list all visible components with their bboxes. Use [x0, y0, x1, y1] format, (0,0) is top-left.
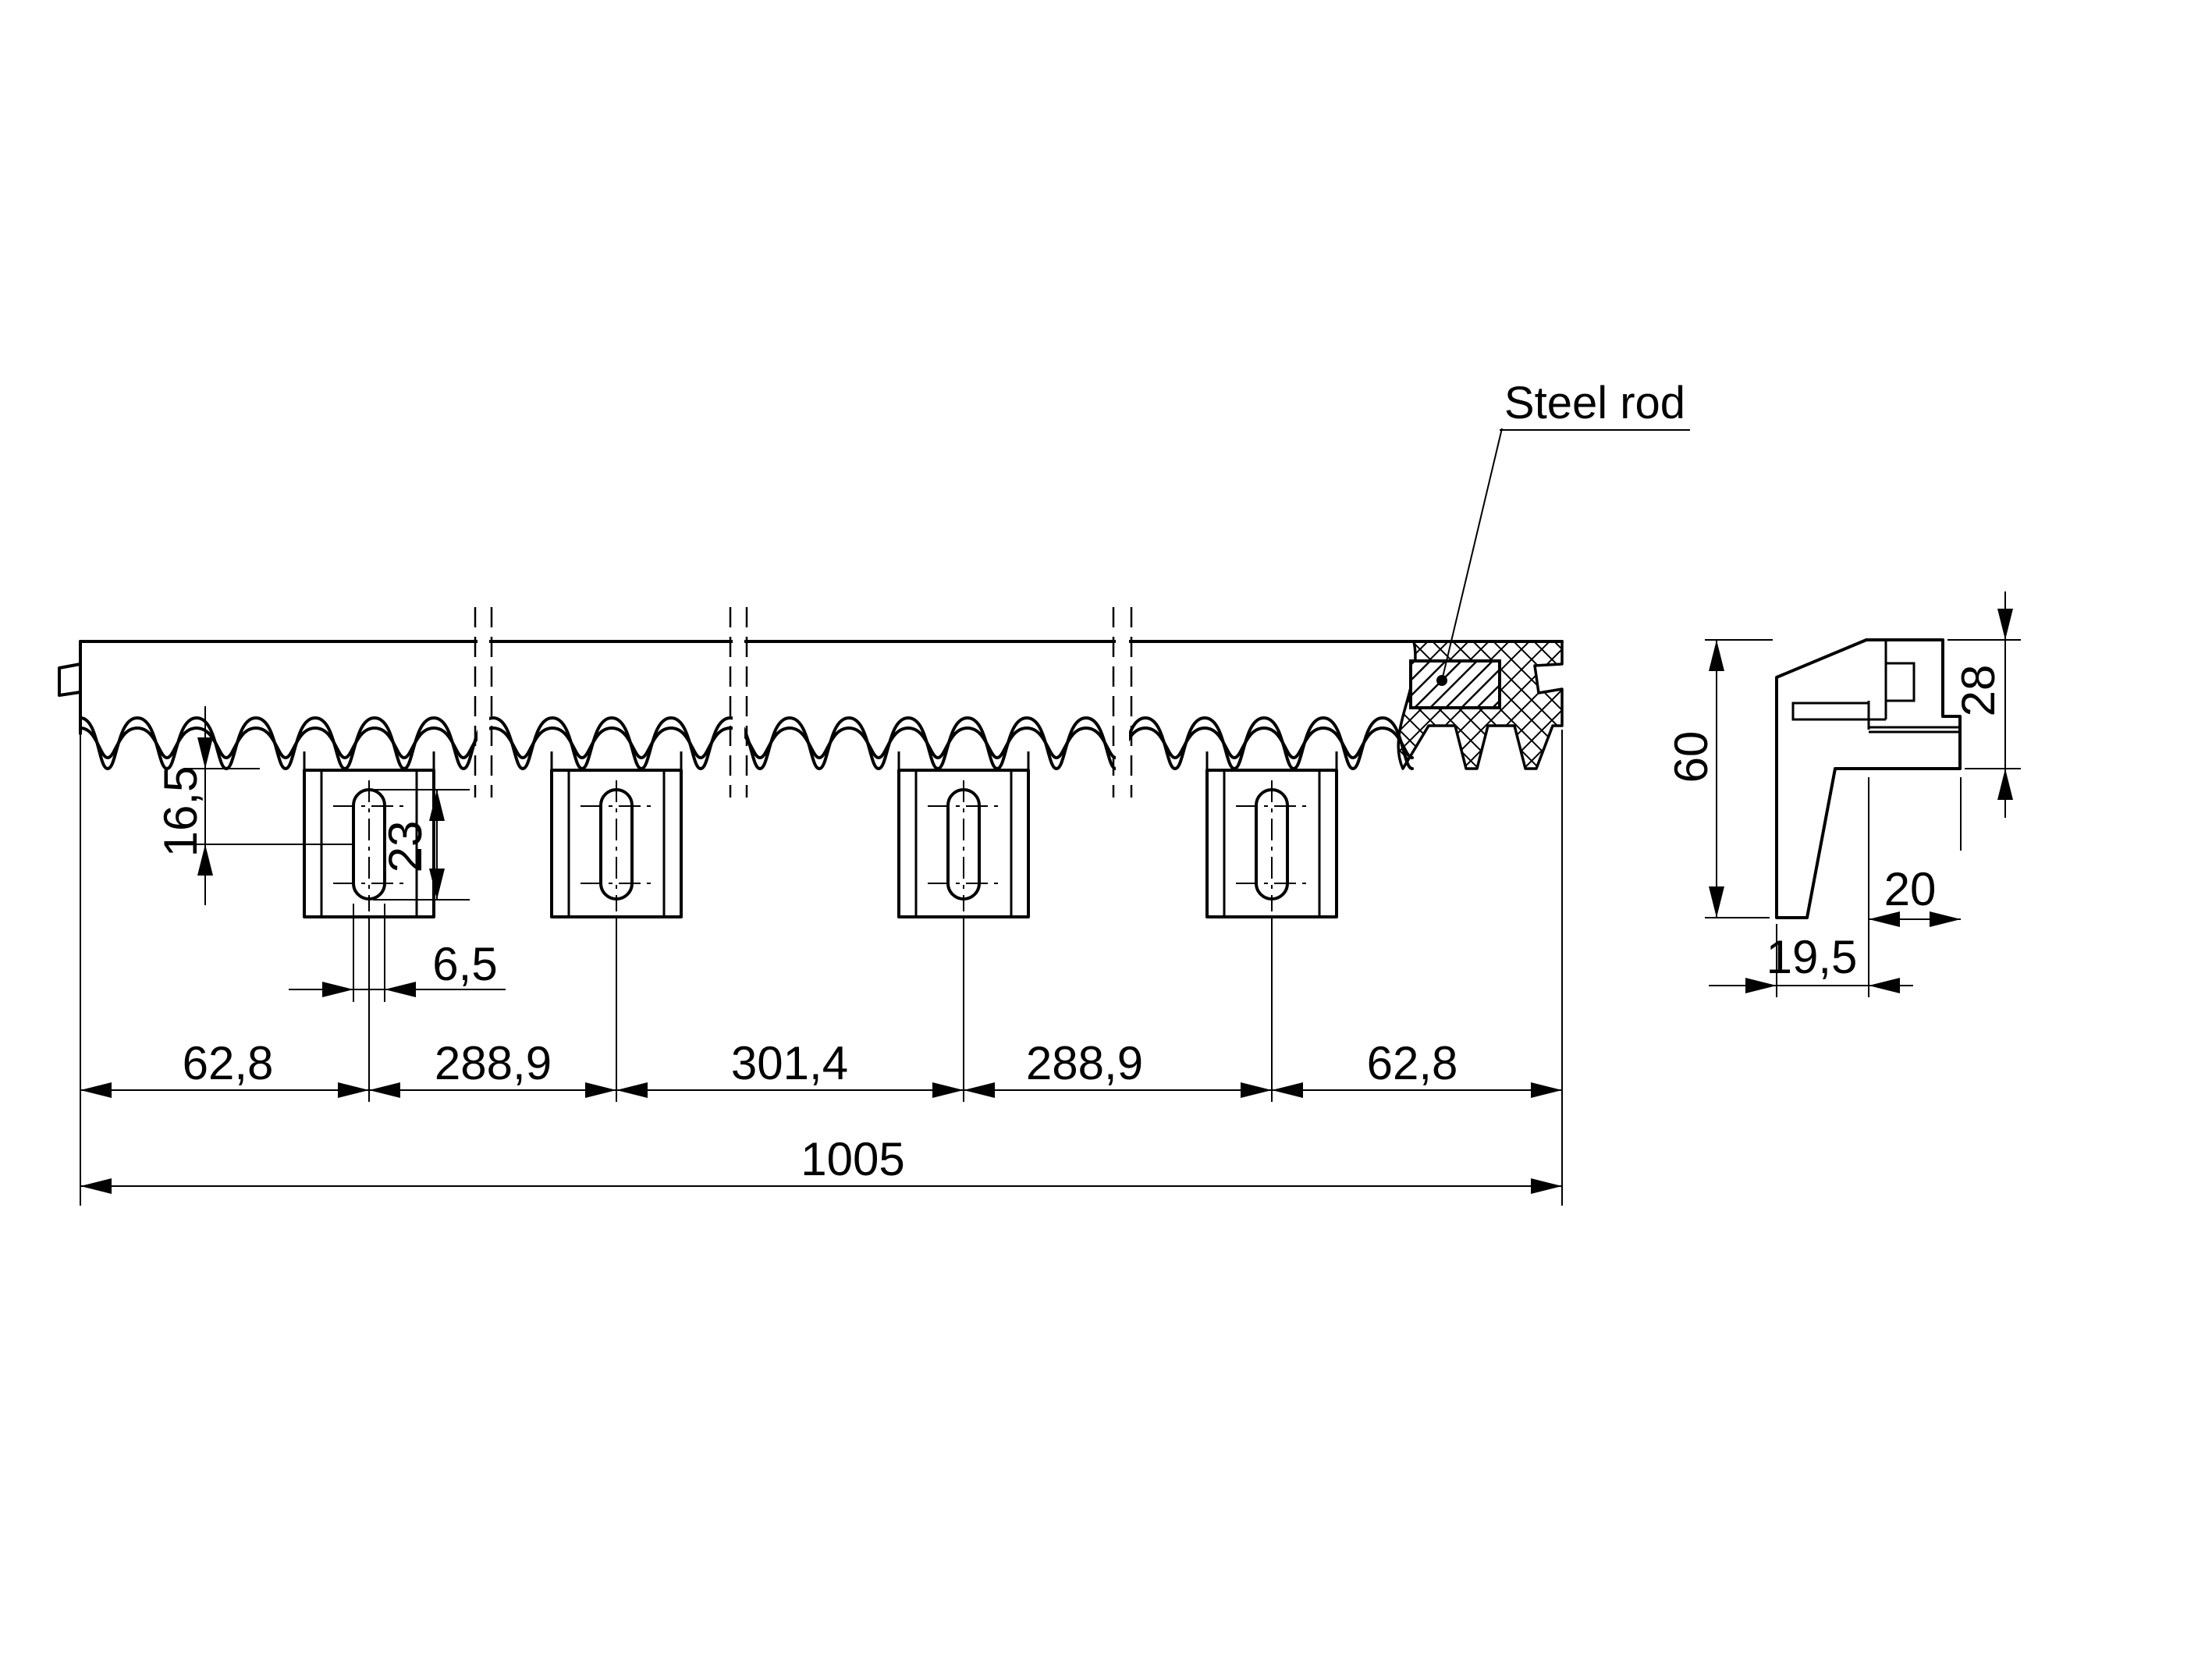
dim-arrow [429, 869, 445, 900]
slot-centerlines [928, 780, 999, 911]
dim-label-62-8-left: 62,8 [183, 1037, 274, 1089]
dim-arrow [1869, 978, 1900, 993]
dim-arrow [1709, 886, 1724, 918]
rack-end-section: Steel rod [1398, 378, 1690, 769]
bracket [1207, 751, 1337, 1102]
dim-arrow [338, 1082, 369, 1098]
bracket-side-stubs [304, 751, 434, 770]
profile-groove [1886, 663, 1914, 701]
break-gap [1116, 624, 1129, 784]
dim-label-6-5: 6,5 [432, 938, 497, 990]
dim-label-60: 60 [1665, 731, 1717, 783]
dim-label-301-4: 301,4 [731, 1037, 848, 1089]
dim-label-16-5: 16,5 [154, 766, 207, 858]
dim-arrow [385, 982, 416, 997]
dim-arrow [964, 1082, 995, 1098]
dim-label-23: 23 [379, 821, 431, 873]
steel-rod-callout: Steel rod [1504, 378, 1685, 428]
dim-arrow [80, 1178, 112, 1194]
dim-arrow [1531, 1178, 1562, 1194]
rack-joint-tab [59, 664, 80, 695]
slot-centerlines [581, 780, 652, 911]
profile-rib [1793, 703, 1869, 719]
dim-label-1005: 1005 [801, 1133, 904, 1185]
dimension-arrows [80, 609, 2013, 1194]
slot-centerlines [1236, 780, 1308, 911]
leader-dot [1436, 675, 1447, 686]
dim-arrow [197, 737, 213, 769]
bracket [899, 751, 1028, 1102]
profile-tooth-edge-lines [1869, 727, 1960, 732]
gear-rack-technical-drawing: Steel rod 62,8 288,9 301,4 288,9 62,8 10… [0, 0, 2212, 1659]
dim-arrow [1531, 1082, 1562, 1098]
dim-arrow [80, 1082, 112, 1098]
dim-arrow [1709, 640, 1724, 671]
dim-label-19-5: 19,5 [1766, 931, 1858, 983]
steel-rod-section [1411, 661, 1500, 708]
profile-step-lines [1869, 701, 1886, 730]
dim-arrow [1997, 769, 2013, 800]
rack-body [59, 641, 1562, 734]
dim-arrow [429, 790, 445, 821]
break-gap [733, 624, 744, 784]
dim-arrow [616, 1082, 648, 1098]
dimension-labels: 62,8 288,9 301,4 288,9 62,8 1005 6,5 16,… [154, 665, 2004, 1185]
dim-label-28: 28 [1952, 665, 2004, 717]
dim-label-288-9-left: 288,9 [435, 1037, 552, 1089]
drawing-canvas: Steel rod 62,8 288,9 301,4 288,9 62,8 10… [0, 0, 2212, 1659]
dim-arrow [369, 1082, 400, 1098]
dim-arrow [1241, 1082, 1272, 1098]
dim-label-20: 20 [1884, 863, 1937, 915]
bracket [552, 751, 681, 1102]
dim-label-62-8-right: 62,8 [1367, 1037, 1458, 1089]
dim-arrow [1997, 609, 2013, 640]
dim-arrow [1272, 1082, 1303, 1098]
break-gap [478, 624, 489, 784]
dim-label-288-9-right: 288,9 [1026, 1037, 1143, 1089]
dim-arrow [322, 982, 353, 997]
dim-arrow [585, 1082, 616, 1098]
dim-arrow [932, 1082, 964, 1098]
bracket-side-stubs [552, 751, 681, 770]
bracket [304, 751, 434, 1102]
bracket-side-stubs [899, 751, 1028, 770]
